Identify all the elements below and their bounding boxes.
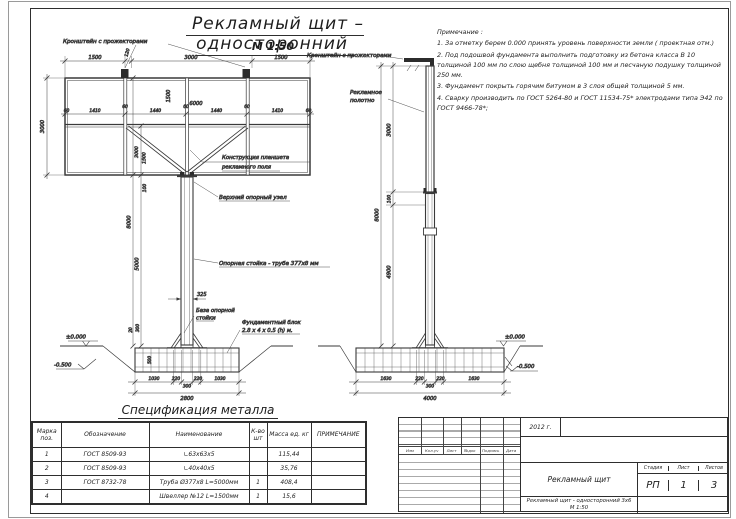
sheet-label: Лист (668, 466, 698, 471)
spec-col-header: Обозначение (61, 422, 149, 448)
dim-text: 5000 (135, 257, 141, 271)
dim-text: 3000 (40, 119, 46, 133)
spec-cell: Швеллер №12 L=1500мм (149, 490, 249, 505)
dim-text: 1030 (149, 376, 160, 382)
spec-col-header: Марка поз. (32, 422, 61, 448)
dim-text: 60 (64, 108, 70, 114)
callout-panel: Конструкция планшета (222, 155, 289, 161)
revision-grid-header: Изм Кол.уч Лист №док Подпись Дата (399, 446, 520, 455)
dim-text: 1440 (211, 108, 222, 114)
callout-panel: рекламного поля (221, 165, 272, 171)
spec-cell (249, 462, 267, 476)
level-text: ±0.000 (66, 335, 87, 341)
drawing-sheet: 1500 120 3000 1500 60 1410 60 1440 60 14… (0, 0, 736, 519)
title-block: Изм Кол.уч Лист №док Подпись Дата 2012 г… (398, 417, 728, 512)
dim-text: 60 (183, 104, 189, 110)
stamp-stage-labels: Стадия Лист Листов (638, 463, 729, 474)
notes-title: Примечание : (437, 27, 727, 37)
dim-text: 60 (244, 104, 250, 110)
dim-text: 1410 (272, 108, 283, 114)
spec-section: Спецификация металла Марка поз. Обозначе… (31, 403, 365, 505)
spec-cell: 15,6 (267, 490, 311, 505)
dim-text: 60 (306, 108, 312, 114)
spec-row: 3 ГОСТ 8732-78 Труба Ø377х8 L=5000мм 1 4… (32, 476, 366, 490)
floodlight-bracket-icon (404, 58, 434, 66)
spec-cell: 4 (32, 490, 61, 505)
dim-text: 6000 (189, 101, 203, 107)
note-item: 2. Под подошвой фундамента выполнить под… (437, 50, 727, 81)
spec-row: 4 Швеллер №12 L=1500мм 1 15,6 (32, 490, 366, 505)
note-item: 3. Фундамент покрыть горячим битумом в 3… (437, 81, 727, 91)
callout-pole: Опорная стойка - труба 377х8 мм (219, 261, 319, 267)
dim-text: 4000 (423, 396, 437, 402)
spec-cell: 115,44 (267, 448, 311, 462)
spec-cell: 408,4 (267, 476, 311, 490)
spec-row: 1 ГОСТ 8509-93 ∟63х63х5 115,44 (32, 448, 366, 462)
dim-text: 220 (194, 376, 202, 382)
stamp-header: Подпись (479, 448, 502, 453)
dim-text: 4900 (387, 265, 393, 279)
level-mark-zero (68, 341, 98, 346)
stamp-header: №док (460, 448, 479, 453)
spec-header-row: Марка поз. Обозначение Наименование К-во… (32, 422, 366, 448)
floodlight-bracket-icon (121, 69, 129, 78)
stamp-project-name: Рекламный щит (521, 463, 638, 497)
dim-text: 1500 (166, 90, 172, 103)
spec-col-header: Наименование (149, 422, 249, 448)
spec-cell (311, 490, 366, 505)
stamp-empty-cell (561, 418, 729, 437)
spec-cell: ГОСТ 8732-78 (61, 476, 149, 490)
note-item: 4. Сварку производить по ГОСТ 5264-80 и … (437, 93, 727, 114)
stamp-doc-name: Рекламный щит - односторонний 3х6 М 1:50 (521, 497, 638, 513)
spec-cell (311, 462, 366, 476)
callout-base: База опорной (196, 308, 235, 314)
callout-top-node: Верхний опорный узел (219, 195, 287, 201)
spec-cell (311, 448, 366, 462)
stage-value: РП (638, 480, 668, 491)
revision-grid-rules (399, 418, 520, 446)
spec-cell: 35,76 (267, 462, 311, 476)
callout-foundation: 2.8 х 4 х 0.5 (h) м. (242, 328, 293, 334)
callout-base: стойки (196, 316, 216, 322)
dim-text: 325 (197, 292, 207, 298)
dim-text: 3000 (134, 146, 140, 158)
spec-table: Марка поз. Обозначение Наименование К-во… (31, 421, 367, 505)
dim-text: 100 (387, 195, 393, 204)
stamp-header: Изм (399, 448, 421, 453)
callout-foundation: Фундаментный блок (242, 320, 301, 326)
doc-name: Рекламный щит - односторонний 3х6 (527, 498, 632, 505)
spec-cell (249, 448, 267, 462)
dim-text: 8000 (127, 215, 133, 229)
stamp-header: Лист (443, 448, 461, 453)
dim-text: 220 (172, 376, 180, 382)
dim-text: 1500 (142, 152, 148, 164)
dim-text: 300 (135, 324, 140, 332)
spec-cell: ГОСТ 8509-93 (61, 462, 149, 476)
notes-block: Примечание : 1. За отметку берем 0.000 п… (437, 27, 727, 114)
spec-cell (61, 490, 149, 505)
spec-row: 2 ГОСТ 8509-93 ∟40х40х5 35,76 (32, 462, 366, 476)
dim-text: 2800 (180, 396, 194, 402)
level-text: -0.500 (517, 364, 535, 370)
level-text: ±0.000 (505, 335, 526, 341)
dim-text: 60 (122, 104, 128, 110)
spec-cell: ∟40х40х5 (149, 462, 249, 476)
spec-col-header: К-во шт (249, 422, 267, 448)
level-mark-zero (496, 341, 526, 346)
note-item: 1. За отметку берем 0.000 принять уровен… (437, 38, 727, 48)
dim-text: 1410 (89, 108, 100, 114)
dim-text: 100 (142, 184, 148, 193)
floodlight-bracket-icon (243, 69, 251, 78)
stamp-empty-band (521, 437, 729, 463)
spec-cell (311, 476, 366, 490)
revision-grid-rules (399, 456, 520, 513)
dim-text: 1630 (469, 376, 480, 382)
spec-col-header: ПРИМЕЧАНИЕ (311, 422, 366, 448)
dim-text: 300 (426, 384, 434, 390)
spec-cell: 1 (249, 490, 267, 505)
callout-canvas: полотно (350, 98, 375, 104)
spec-cell: 2 (32, 462, 61, 476)
stamp-year: 2012 г. (521, 418, 561, 437)
stamp-stage-values: РП 1 3 (638, 474, 729, 497)
dim-text: 220 (415, 376, 423, 382)
drawing-scale: М 1:50 (238, 40, 308, 53)
spec-cell: ГОСТ 8509-93 (61, 448, 149, 462)
dim-text: 1500 (88, 55, 102, 61)
level-text: -0.500 (54, 363, 72, 369)
sheet-value: 1 (668, 480, 698, 491)
dim-text: 500 (147, 356, 152, 364)
revision-grid: Изм Кол.уч Лист №док Подпись Дата (399, 418, 521, 511)
dim-text: 1440 (150, 108, 161, 114)
dim-text: 220 (436, 376, 444, 382)
spec-cell: 1 (32, 448, 61, 462)
stage-label: Стадия (638, 466, 668, 471)
dim-text: 300 (183, 384, 191, 390)
spec-cell: ∟63х63х5 (149, 448, 249, 462)
callout-canvas: Рекламное (350, 90, 382, 96)
spec-cell: Труба Ø377х8 L=5000мм (149, 476, 249, 490)
dim-text: 1030 (215, 376, 226, 382)
spec-cell: 3 (32, 476, 61, 490)
spec-table-title: Спецификация металла (31, 403, 365, 417)
stamp-header: Дата (502, 448, 520, 453)
spec-col-header: Масса ед. кг (267, 422, 311, 448)
dim-text: 3000 (387, 123, 393, 137)
dim-text: 20 (128, 327, 133, 333)
sheets-label: Листов (698, 466, 729, 471)
doc-scale: М 1:50 (570, 505, 588, 512)
stamp-header: Кол.уч (421, 448, 443, 453)
dim-text: 1630 (381, 376, 392, 382)
front-view: 1500 120 3000 1500 60 1410 60 1440 60 14… (40, 39, 330, 402)
sheets-value: 3 (698, 480, 729, 491)
dim-text: 8000 (375, 208, 381, 222)
spec-cell: 1 (249, 476, 267, 490)
